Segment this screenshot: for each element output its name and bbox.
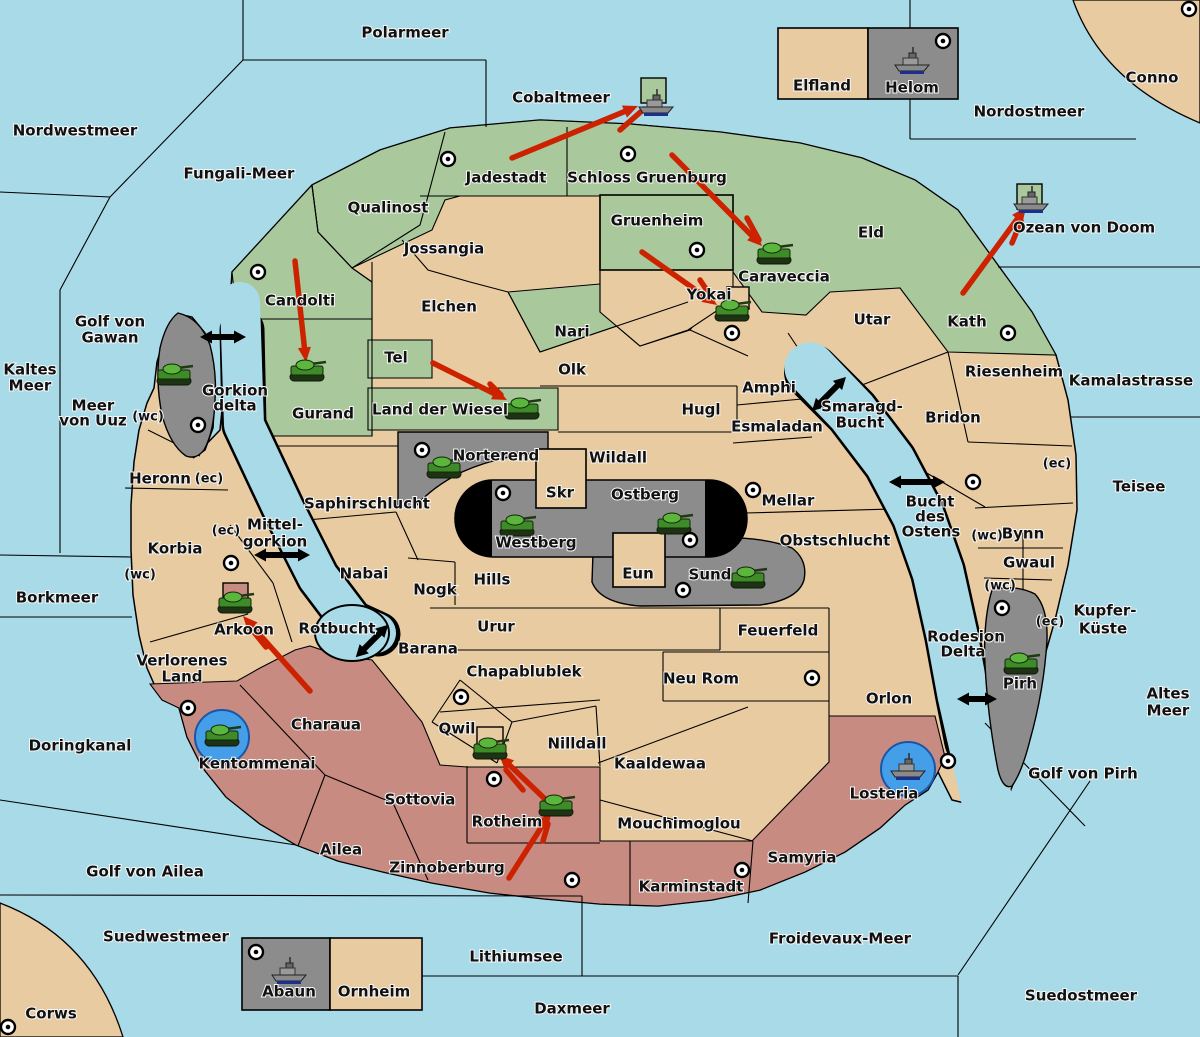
label-chapablublek: Chapablublek <box>466 663 582 681</box>
label-charaua: Charaua <box>291 716 361 734</box>
label-wildall: Wildall <box>589 449 647 467</box>
label-ailea: Ailea <box>320 841 362 859</box>
label-kamalastrasse: Kamalastrasse <box>1069 372 1193 390</box>
label-sottovia: Sottovia <box>385 791 456 809</box>
label-nogk: Nogk <box>413 581 458 599</box>
label-rotbucht: Rotbucht <box>298 620 375 638</box>
label-gurand: Gurand <box>292 405 354 423</box>
label-sund: Sund <box>689 566 732 584</box>
supply-center-5[interactable] <box>936 34 950 48</box>
label-ostberg: Ostberg <box>611 486 679 504</box>
supply-center-21[interactable] <box>181 701 195 715</box>
label-nabai: Nabai <box>340 565 389 583</box>
supply-center-9[interactable] <box>415 443 429 457</box>
label-elchen: Elchen <box>421 298 477 316</box>
supply-center-12[interactable] <box>746 483 760 497</box>
supply-center-11[interactable] <box>683 533 697 547</box>
label-polarmeer: Polarmeer <box>361 24 449 42</box>
label-helom: Helom <box>885 79 939 97</box>
supply-center-20[interactable] <box>454 690 468 704</box>
label-golf-von-pirh: Golf von Pirh <box>1028 765 1138 783</box>
label-eun: Eun <box>622 565 654 583</box>
label-wc-korbia: (wc) <box>124 568 156 583</box>
label-jossangia: Jossangia <box>403 240 485 258</box>
label-hills: Hills <box>474 571 511 589</box>
label-urur: Urur <box>477 618 515 636</box>
supply-center-19[interactable] <box>565 873 579 887</box>
label-zinnoberburg: Zinnoberburg <box>389 859 505 877</box>
label-skr: Skr <box>546 484 575 502</box>
label-saphirschlucht: Saphirschlucht <box>304 495 430 513</box>
supply-center-17[interactable] <box>941 754 955 768</box>
label-nordwestmeer: Nordwestmeer <box>13 122 138 140</box>
label-altes-meer-1: Altes <box>1146 685 1189 703</box>
label-candolti: Candolti <box>265 292 335 310</box>
label-rodesion-delta-2: Delta <box>940 643 985 661</box>
label-daxmeer: Daxmeer <box>534 1000 610 1018</box>
label-kupfer-kueste-2: Küste <box>1079 620 1127 638</box>
label-corws: Corws <box>25 1005 77 1023</box>
label-doringkanal: Doringkanal <box>29 737 132 755</box>
label-heronn: Heronn <box>129 470 191 488</box>
label-feuerfeld: Feuerfeld <box>738 622 819 640</box>
supply-center-6[interactable] <box>1182 2 1196 16</box>
label-westberg: Westberg <box>495 534 576 552</box>
label-yokai: Yokai <box>685 286 731 304</box>
supply-center-3[interactable] <box>725 326 739 340</box>
label-gwaul: Gwaul <box>1003 554 1055 572</box>
label-schloss-gruenburg: Schloss Gruenburg <box>567 169 727 187</box>
label-golf-von-ailea: Golf von Ailea <box>86 863 204 881</box>
label-mouchimoglou: Mouchimoglou <box>617 815 740 833</box>
supply-center-24[interactable] <box>1 1020 15 1034</box>
label-gruenheim: Gruenheim <box>611 212 704 230</box>
supply-center-23[interactable] <box>249 945 263 959</box>
label-orlon: Orlon <box>866 690 912 708</box>
label-ornheim: Ornheim <box>338 983 410 1001</box>
label-kupfer-kueste-1: Kupfer- <box>1073 602 1136 620</box>
label-arkoon: Arkoon <box>214 621 274 639</box>
label-bridon: Bridon <box>925 409 981 427</box>
supply-center-0[interactable] <box>441 152 455 166</box>
label-jadestadt: Jadestadt <box>465 169 547 187</box>
label-borkmeer: Borkmeer <box>16 589 99 607</box>
label-ec-pirh: (ec) <box>1036 615 1064 630</box>
label-meer-von-uuz-2: von Uuz <box>59 412 127 430</box>
label-suedwestmeer: Suedwestmeer <box>103 928 229 946</box>
supply-center-25[interactable] <box>487 772 501 786</box>
label-nordostmeer: Nordostmeer <box>974 103 1085 121</box>
label-ozean-von-doom: Ozean von Doom <box>1013 219 1155 237</box>
label-barana: Barana <box>398 640 458 658</box>
label-losteria: Losteria <box>850 785 919 803</box>
label-kaaldewaa: Kaaldewaa <box>614 755 706 773</box>
label-tel: Tel <box>384 349 408 367</box>
label-verlorenes-land-2: Land <box>161 668 202 686</box>
label-pirh: Pirh <box>1003 675 1037 693</box>
label-korbia: Korbia <box>147 540 202 558</box>
label-norterend: Norterend <box>453 447 540 465</box>
label-mittel-gorkion-2: gorkion <box>243 533 308 551</box>
label-conno: Conno <box>1126 69 1179 87</box>
label-olk: Olk <box>558 361 587 379</box>
label-kentommenai: Kentommenai <box>198 755 315 773</box>
label-smaragd-bucht-2: Bucht <box>836 414 885 432</box>
label-bynn: Bynn <box>1002 525 1045 543</box>
supply-center-16[interactable] <box>805 671 819 685</box>
label-wc-gwaul: (wc) <box>984 579 1016 594</box>
label-mellar: Mellar <box>762 492 816 510</box>
label-ec-heronn: (ec) <box>195 472 223 487</box>
supply-center-18[interactable] <box>735 863 749 877</box>
label-karminstadt: Karminstadt <box>639 878 744 896</box>
label-lithiumsee: Lithiumsee <box>469 948 562 966</box>
label-mittel-gorkion-1: Mittel- <box>247 516 303 534</box>
label-samyria: Samyria <box>768 849 837 867</box>
label-fungali-meer: Fungali-Meer <box>184 165 295 183</box>
label-caraveccia: Caraveccia <box>738 268 830 286</box>
label-wc-uuz: (wc) <box>132 410 164 425</box>
label-obstschlucht: Obstschlucht <box>780 532 891 550</box>
label-ec-korbia: (ec) <box>212 524 240 539</box>
label-riesenheim: Riesenheim <box>965 363 1063 381</box>
label-rotheim: Rotheim <box>472 813 543 831</box>
label-nari: Nari <box>554 323 589 341</box>
game-map: PolarmeerNordwestmeerFungali-MeerCobaltm… <box>0 0 1200 1037</box>
supply-center-22[interactable] <box>224 556 238 570</box>
label-land-der-wiesel: Land der Wiesel <box>372 401 508 419</box>
label-suedostmeer: Suedostmeer <box>1025 987 1138 1005</box>
supply-center-4[interactable] <box>1001 326 1015 340</box>
label-abaun: Abaun <box>262 983 316 1001</box>
supply-center-13[interactable] <box>676 583 690 597</box>
label-elfland: Elfland <box>793 77 851 95</box>
label-wc-bynn: (wc) <box>971 529 1003 544</box>
supply-center-15[interactable] <box>995 601 1009 615</box>
label-qwil: Qwil <box>439 720 476 738</box>
supply-center-10[interactable] <box>496 486 510 500</box>
label-amphi: Amphi <box>742 379 796 397</box>
supply-center-8[interactable] <box>191 418 205 432</box>
label-teisee: Teisee <box>1113 478 1166 496</box>
label-kath: Kath <box>947 313 987 331</box>
label-gorkion-delta-2: delta <box>213 397 256 415</box>
label-altes-meer-2: Meer <box>1147 702 1190 720</box>
label-bucht-des-ostens-3: Ostens <box>902 523 961 541</box>
label-utar: Utar <box>854 311 891 329</box>
label-golf-von-gawan-2: Gawan <box>81 329 138 347</box>
label-froidevaux-meer: Froidevaux-Meer <box>769 930 912 948</box>
label-ec-bridon-coast: (ec) <box>1043 457 1071 472</box>
supply-center-7[interactable] <box>251 265 265 279</box>
label-cobaltmeer: Cobaltmeer <box>512 89 610 107</box>
label-esmaladan: Esmaladan <box>731 418 823 436</box>
label-hugl: Hugl <box>681 401 720 419</box>
label-neu-rom: Neu Rom <box>663 670 739 688</box>
supply-center-1[interactable] <box>621 147 635 161</box>
label-nilldall: Nilldall <box>547 735 606 753</box>
label-qualinost: Qualinost <box>348 199 429 217</box>
supply-center-2[interactable] <box>690 243 704 257</box>
label-kaltes-meer-2: Meer <box>9 377 52 395</box>
label-eld: Eld <box>858 224 884 242</box>
supply-center-14[interactable] <box>966 475 980 489</box>
